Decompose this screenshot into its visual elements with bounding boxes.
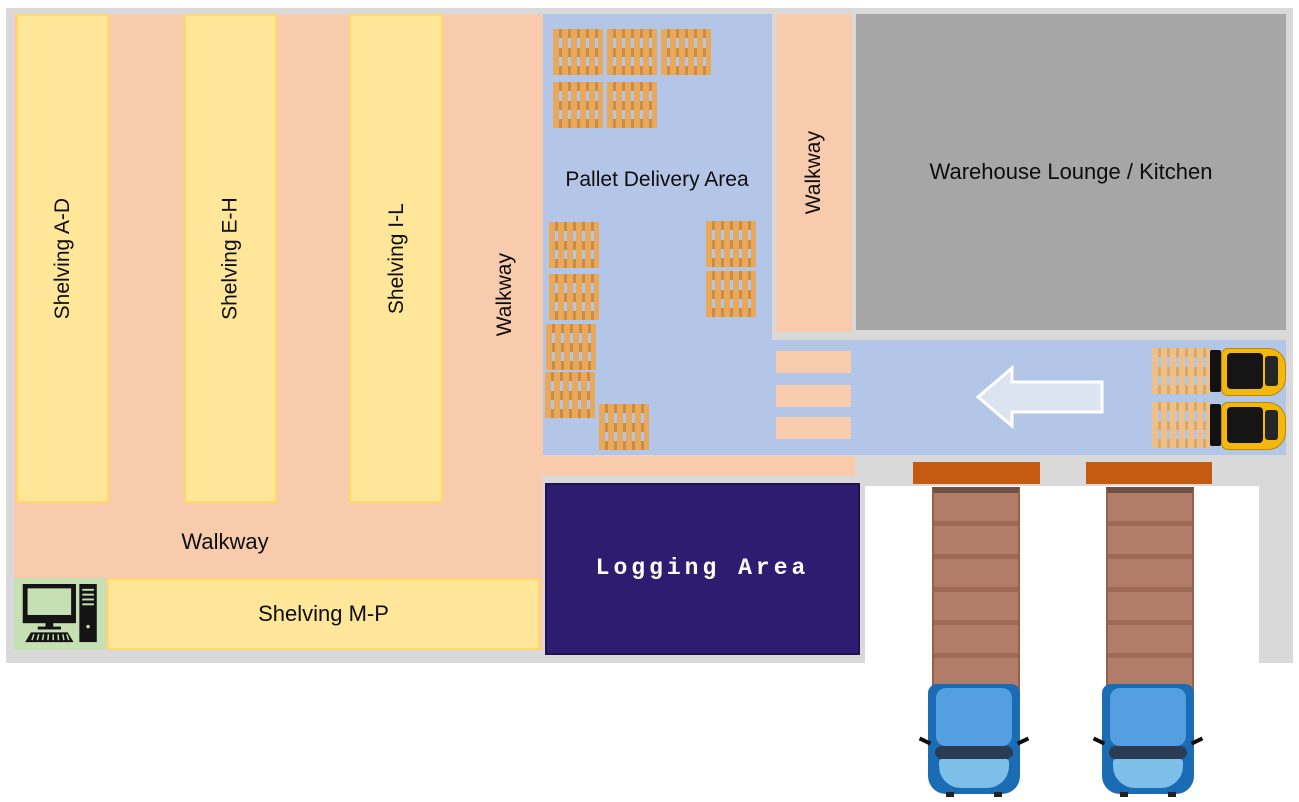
pallet-icon <box>545 372 595 418</box>
walkway-bottom-label: Walkway <box>181 528 268 557</box>
truck-icon <box>1102 487 1194 799</box>
truck-trailer <box>1106 487 1194 691</box>
pallet-icon <box>1152 348 1210 394</box>
walkway-bottom-label-wrap: Walkway <box>140 527 310 557</box>
crosswalk-stripe <box>776 385 851 407</box>
truck-trailer <box>932 487 1020 691</box>
shelving-mp-label: Shelving M-P <box>258 600 389 629</box>
pallet-icon <box>706 271 756 317</box>
shelving-ad-label: Shelving A-D <box>49 198 76 319</box>
truck-cab <box>1102 684 1194 794</box>
pallet-icon <box>706 221 756 267</box>
walkway-right-area: Walkway <box>776 14 852 332</box>
pallet-icon <box>553 29 603 75</box>
left-arrow-icon <box>975 365 1105 430</box>
logging-area-label: Logging Area <box>596 554 810 584</box>
pallet-icon <box>546 324 596 370</box>
pallet-icon <box>661 29 711 75</box>
pallet-icon <box>549 222 599 268</box>
pallet-icon <box>599 404 649 450</box>
shelving-eh-area: Shelving E-H <box>184 14 277 503</box>
pallet-delivery-label-wrap: Pallet Delivery Area <box>557 140 757 220</box>
truck-icon <box>928 487 1020 799</box>
pallet-icon <box>549 274 599 320</box>
shelving-eh-label: Shelving E-H <box>217 197 244 320</box>
shelving-mp-area: Shelving M-P <box>107 578 540 650</box>
shelving-ad-area: Shelving A-D <box>16 14 109 503</box>
truck-cab <box>928 684 1020 794</box>
loading-dock-door <box>1086 462 1212 484</box>
pallet-icon <box>607 29 657 75</box>
loading-dock-door <box>913 462 1040 484</box>
crosswalk-stripe <box>776 351 851 373</box>
shelving-il-label: Shelving I-L <box>382 203 409 314</box>
warehouse-floor-plan: Shelving A-D Shelving E-H Shelving I-L W… <box>0 0 1299 802</box>
walkway-right-label: Walkway <box>800 131 827 214</box>
walkway-center-label: Walkway <box>491 253 518 336</box>
lounge-kitchen-label: Warehouse Lounge / Kitchen <box>930 158 1213 187</box>
lounge-kitchen-area: Warehouse Lounge / Kitchen <box>856 14 1286 330</box>
shelving-il-area: Shelving I-L <box>349 14 443 503</box>
forklift-icon <box>1152 348 1284 394</box>
pallet-delivery-label: Pallet Delivery Area <box>565 166 748 193</box>
pallet-icon <box>553 82 603 128</box>
logging-area: Logging Area <box>545 483 860 655</box>
truck-bay-apron <box>865 486 1259 663</box>
pallet-icon <box>1152 402 1210 448</box>
pallet-icon <box>607 82 657 128</box>
computer-station-area <box>14 578 106 650</box>
walkway-strip-logging <box>543 456 855 476</box>
crosswalk-stripe <box>776 417 851 439</box>
computer-workstation-icon <box>21 584 99 644</box>
forklift-icon <box>1152 402 1284 448</box>
